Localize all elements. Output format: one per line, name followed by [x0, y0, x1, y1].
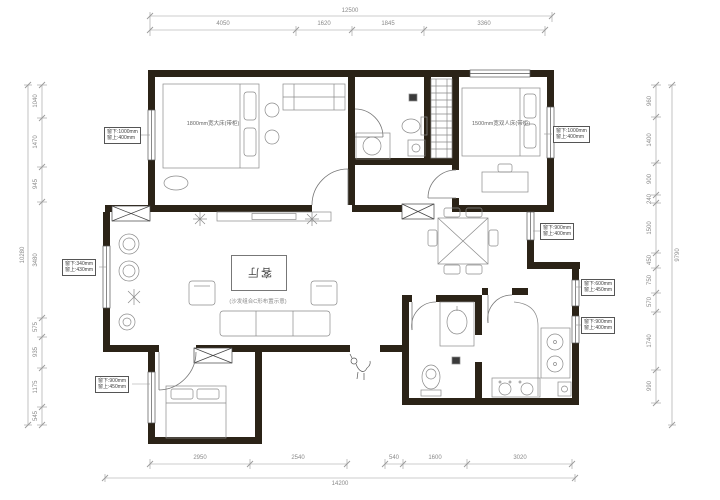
dim-left-seg: 3480 — [33, 253, 39, 266]
dim-left-seg: 545 — [33, 411, 39, 421]
dim-left-seg: 935 — [33, 347, 39, 357]
dim-right-seg: 1500 — [647, 221, 653, 234]
dog-figure — [350, 354, 370, 380]
window-note-kitchen-a: 窗下:600mm 窗上:450mm — [581, 279, 615, 296]
second-bedroom-label: 1500mm宽双人床(带柜) — [462, 119, 540, 127]
dim-bottom-seg: 2540 — [291, 455, 304, 461]
living-room-label-box: 客厅 — [231, 255, 287, 291]
window-note-left-top: 窗下:1000mm 窗上:400mm — [104, 127, 141, 144]
dim-right-seg: 990 — [647, 381, 653, 391]
bathroom2-icons — [421, 302, 474, 396]
master-bed-icon — [163, 84, 279, 190]
window-note-left-bottom: 窗下:900mm 窗上:450mm — [95, 376, 129, 393]
living-room-label: 客厅 — [246, 265, 272, 281]
dining-table-icon — [428, 208, 498, 274]
toilet-icon — [402, 117, 427, 135]
tv-cabinet-icon — [217, 212, 331, 221]
floor-plan-canvas: 1800mm宽大床(带柜) 1500mm宽双人床(带柜) 客厅 (沙发组合C形布… — [0, 0, 720, 500]
dim-bottom-total: 14200 — [332, 481, 349, 487]
dim-right-seg: 240 — [647, 194, 653, 204]
dim-top-seg: 4050 — [216, 21, 229, 27]
window-note-right-top: 窗下:1000mm 窗上:400mm — [553, 126, 590, 143]
dim-top-seg: 1620 — [317, 21, 330, 27]
dim-left-seg: 1175 — [33, 381, 39, 394]
window-note-left-mid: 窗下:340mm 窗上:430mm — [62, 259, 96, 276]
dim-bottom-seg: 540 — [389, 455, 399, 461]
dim-top-total: 12500 — [342, 8, 359, 14]
dim-right-seg: 900 — [647, 174, 653, 184]
dim-top-seg: 1845 — [381, 21, 394, 27]
furniture — [119, 79, 571, 438]
dim-bottom-seg: 2950 — [193, 455, 206, 461]
dim-right-seg: 960 — [647, 96, 653, 106]
stool-icons — [119, 234, 140, 330]
dim-right-seg: 750 — [647, 275, 653, 285]
dim-right-seg: 450 — [647, 255, 653, 265]
dim-left-seg: 945 — [33, 179, 39, 189]
dim-right-seg: 570 — [647, 297, 653, 307]
dim-right-seg: 1400 — [647, 133, 653, 146]
master-bedroom-label: 1800mm宽大床(带柜) — [163, 119, 263, 127]
dim-left-total: 10280 — [20, 247, 26, 264]
plant-icon — [193, 212, 319, 226]
window-note-dining: 窗下:900mm 窗上:400mm — [540, 223, 574, 240]
dim-left-seg: 575 — [33, 322, 39, 332]
dim-left-seg: 1040 — [33, 94, 39, 107]
closet-icon — [283, 84, 345, 110]
dim-bottom-seg: 3020 — [513, 455, 526, 461]
dim-bottom-seg: 1600 — [428, 455, 441, 461]
living-room-note: (沙发组合C形布置示意) — [198, 297, 318, 305]
desk-icon — [482, 164, 528, 192]
dim-right-seg: 1740 — [647, 334, 653, 347]
dim-top-seg: 3360 — [477, 21, 490, 27]
window-note-kitchen-b: 窗下:900mm 窗上:400mm — [581, 317, 615, 334]
dim-right-total: 9790 — [675, 248, 681, 261]
dim-left-seg: 1470 — [33, 135, 39, 148]
small-bed-icon — [166, 386, 226, 438]
kitchen-icons — [492, 302, 571, 397]
floorplan-linework — [0, 0, 720, 500]
